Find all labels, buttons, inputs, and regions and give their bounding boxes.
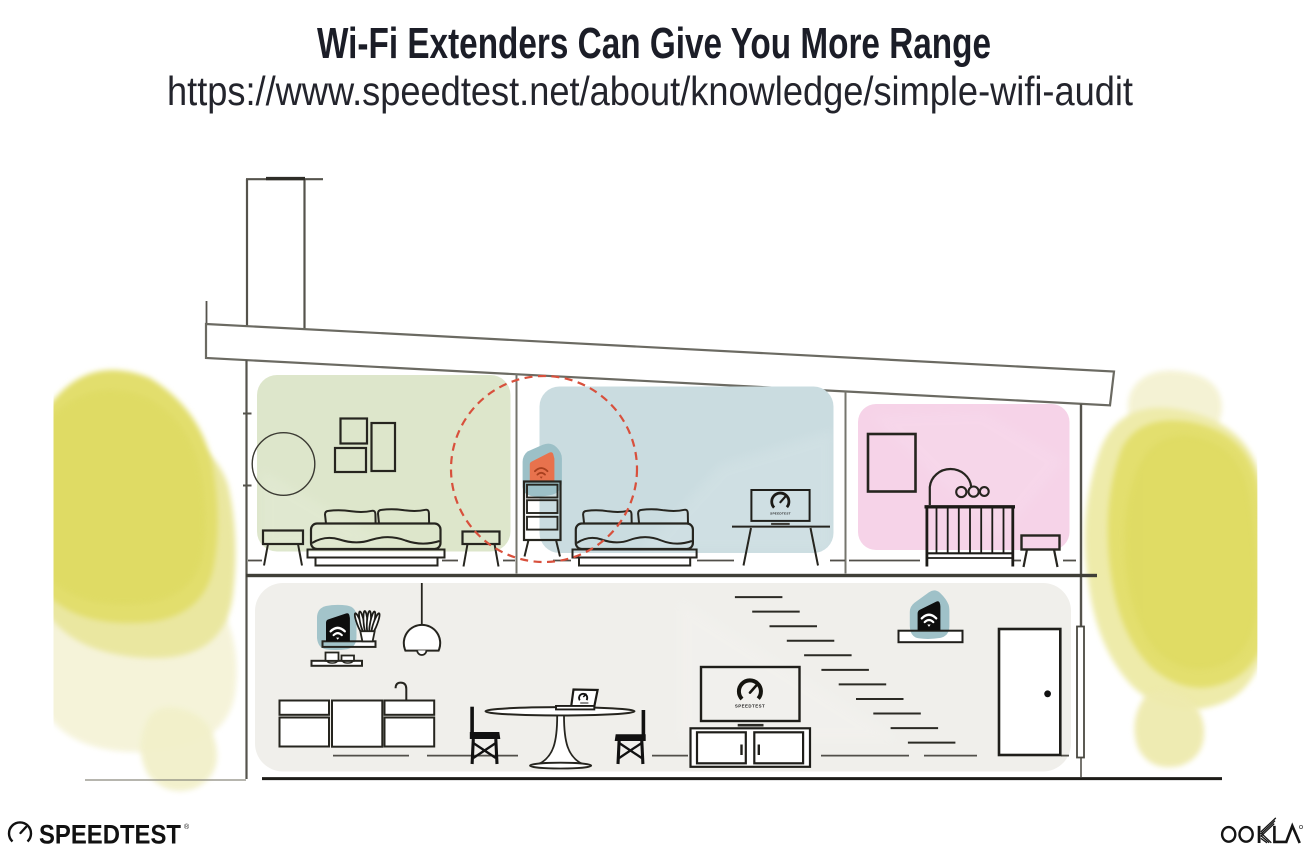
svg-text:https://www.speedtest.net/abou: https://www.speedtest.net/about/knowledg… xyxy=(167,68,1134,114)
svg-text:®: ® xyxy=(184,823,190,831)
svg-text:SPEEDTEST: SPEEDTEST xyxy=(735,704,765,709)
svg-text:Wi-Fi Extenders Can Give You M: Wi-Fi Extenders Can Give You More Range xyxy=(317,19,991,68)
svg-text:SPEEDTEST: SPEEDTEST xyxy=(39,820,181,850)
svg-text:SPEEDTEST: SPEEDTEST xyxy=(770,512,791,516)
